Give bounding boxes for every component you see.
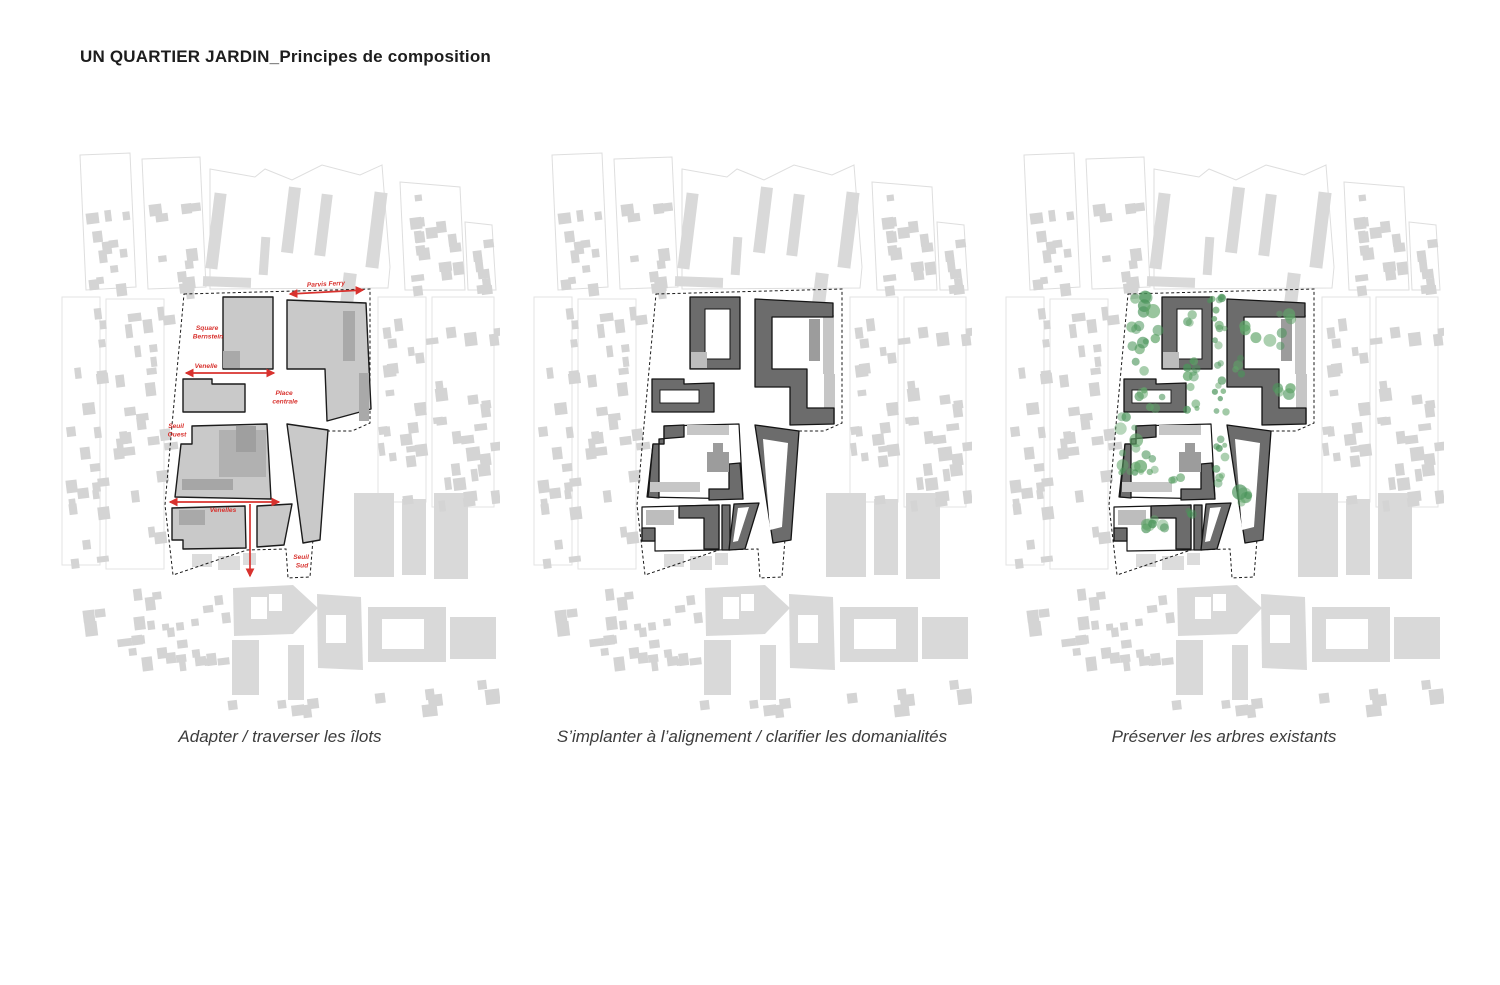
panels-row: Parvis Ferry Square Bernstein Venelle Pl…	[60, 147, 1500, 747]
label-venelles: Venelles	[210, 507, 237, 514]
label-place-centrale: Place centrale	[272, 390, 298, 406]
page-title: UN QUARTIER JARDIN_Principes de composit…	[80, 47, 1500, 67]
label-venelle: Venelle	[195, 363, 218, 370]
map-alignement-domanialites	[532, 147, 972, 719]
panel-arbres: Préserver les arbres existants	[1004, 147, 1444, 747]
map-arbres-existants	[1004, 147, 1444, 719]
caption-alignement: S’implanter à l’alignement / clarifier l…	[557, 727, 947, 747]
label-seuil-ouest: Seuil Ouest	[168, 423, 187, 439]
caption-arbres: Préserver les arbres existants	[1112, 727, 1337, 747]
label-square-bernstein: Square Bernstein	[193, 325, 223, 341]
caption-adapter: Adapter / traverser les îlots	[178, 727, 381, 747]
map-adapter-traverser: Parvis Ferry Square Bernstein Venelle Pl…	[60, 147, 500, 719]
panel-alignement: S’implanter à l’alignement / clarifier l…	[532, 147, 972, 747]
label-seuil-sud: Seuil Sud	[293, 554, 311, 570]
panel-adapter: Parvis Ferry Square Bernstein Venelle Pl…	[60, 147, 500, 747]
